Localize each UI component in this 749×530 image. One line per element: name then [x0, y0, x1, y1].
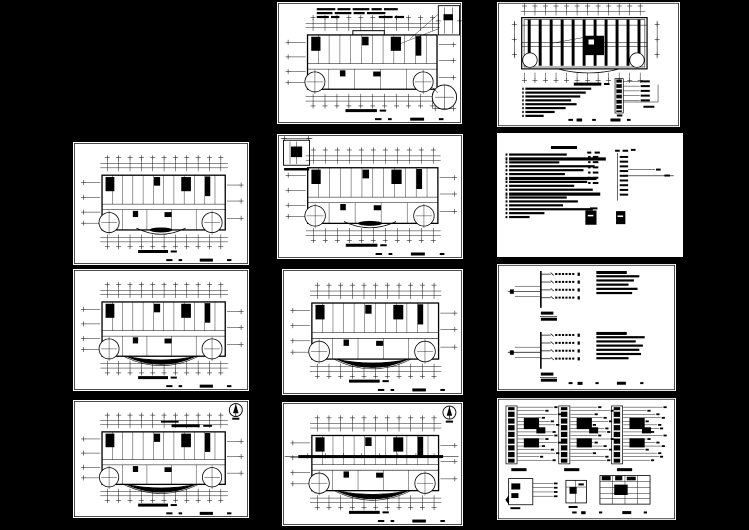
power-distribution-system-sheet-drawing [497, 264, 676, 391]
floor-plan-sheet-2-drawing [73, 142, 249, 265]
floor-plan-sheet-3-drawing [277, 134, 463, 259]
sheet-floor-plan-sheet-7 [282, 402, 463, 526]
sheet-roof-plan-sheet [497, 2, 680, 127]
panel-schedule-sheet-drawing [497, 398, 676, 520]
sheet-first-floor-plan-sheet [277, 2, 462, 124]
sheet-floor-plan-sheet-5 [282, 269, 463, 395]
sheet-power-distribution-system-sheet [497, 264, 676, 391]
floor-plan-sheet-5-drawing [282, 269, 463, 395]
sheet-design-notes-sheet [497, 133, 683, 257]
design-notes-sheet-drawing [497, 133, 683, 257]
floor-plan-sheet-6-drawing [73, 400, 249, 518]
floor-plan-sheet-7-drawing [282, 402, 463, 526]
sheet-floor-plan-sheet-4 [73, 269, 249, 391]
floor-plan-sheet-4-drawing [73, 269, 249, 391]
sheet-floor-plan-sheet-3 [277, 134, 463, 259]
sheet-floor-plan-sheet-2 [73, 142, 249, 265]
cad-preview-canvas [0, 0, 749, 530]
sheet-panel-schedule-sheet [497, 398, 676, 520]
sheet-floor-plan-sheet-6 [73, 400, 249, 518]
roof-plan-sheet-drawing [497, 2, 680, 127]
first-floor-plan-sheet-drawing [277, 2, 462, 124]
